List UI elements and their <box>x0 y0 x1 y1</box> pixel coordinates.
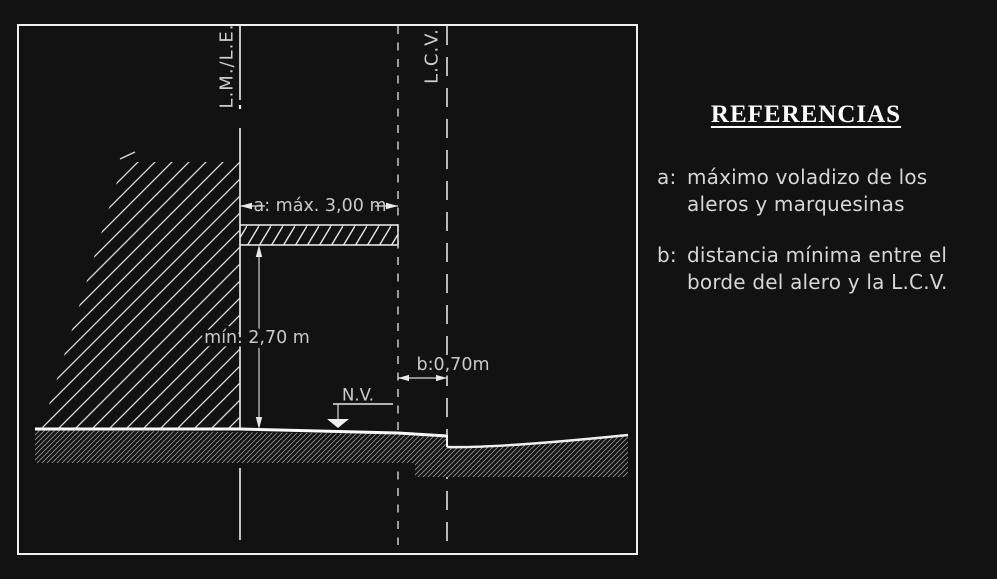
dim-b-label: b:0,70m <box>416 355 489 375</box>
building-wall-hatch <box>42 162 240 428</box>
reference-text-b: distancia mínima entre el borde del aler… <box>687 242 948 296</box>
reference-key-b: b: <box>655 242 687 269</box>
nv-label: N.V. <box>342 386 374 405</box>
level-triangle-icon <box>327 419 349 428</box>
reference-key-a: a: <box>655 164 687 191</box>
reference-item-b: b: distancia mínima entre el borde del a… <box>655 242 957 296</box>
references-title: REFERENCIAS <box>655 101 957 129</box>
dim-a-label: a: máx. 3,00 m <box>253 196 386 216</box>
ground-subbase-band <box>35 430 628 477</box>
reference-text-a: máximo voladizo de los aleros y marquesi… <box>687 164 927 218</box>
diagram-frame: a: máx. 3,00 m mín. 2,70 m N.V. b:0,70m … <box>17 24 638 555</box>
dim-min-height-label: mín. 2,70 m <box>204 328 310 348</box>
lcv-line-label: L.C.V. <box>422 28 443 84</box>
canopy-alero <box>240 225 398 245</box>
dimension-b: b:0,70m <box>398 355 490 381</box>
dimension-a: a: máx. 3,00 m <box>240 196 398 216</box>
stray-hatch-tick <box>120 152 135 159</box>
lmle-line-label: L.M./L.E. <box>217 26 238 108</box>
references-panel: REFERENCIAS a: máximo voladizo de los al… <box>655 101 957 296</box>
section-diagram: a: máx. 3,00 m mín. 2,70 m N.V. b:0,70m … <box>19 26 636 553</box>
reference-item-a: a: máximo voladizo de los aleros y marqu… <box>655 164 957 218</box>
nv-level-marker: N.V. <box>327 386 393 429</box>
